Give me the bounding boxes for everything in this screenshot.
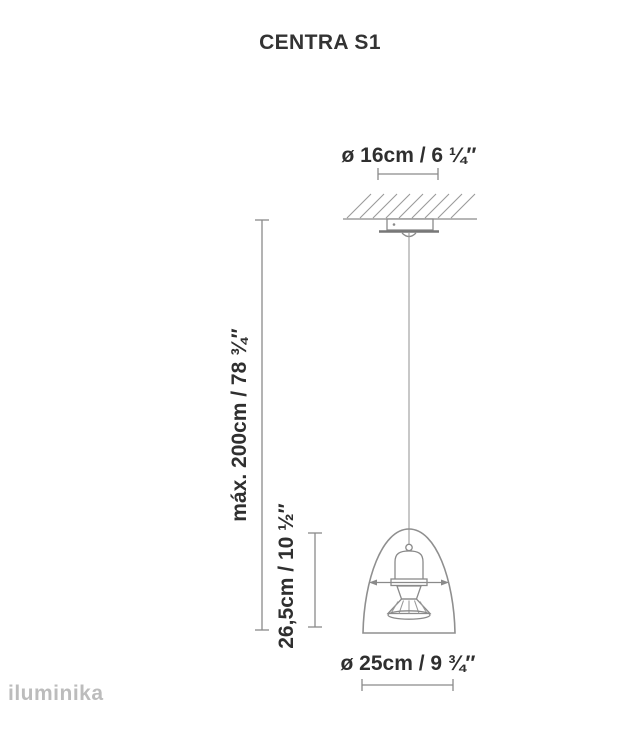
canopy-diameter-label: ø 16cm / 6 ¼″	[342, 144, 477, 167]
bulb-socket	[397, 586, 421, 599]
shade-diameter-dimension-line	[362, 679, 453, 691]
bulb-assembly	[369, 544, 449, 619]
shade-height-dimension-line	[308, 533, 322, 627]
shade-height-label: 26,5cm / 10 ½″	[275, 503, 298, 649]
max-height-label: máx. 200cm / 78 ¾″	[228, 328, 251, 521]
canopy-diameter-dimension-line	[378, 168, 438, 180]
cord-knob	[406, 544, 412, 550]
ceiling-hatch	[347, 194, 475, 218]
shade-diameter-label: ø 25cm / 9 ¾″	[341, 652, 476, 675]
watermark: iluminika	[8, 682, 104, 705]
page-title: CENTRA S1	[259, 31, 381, 54]
dimension-diagram-page: CENTRA S1 ø 16cm / 6 ¼″ máx. 200cm / 78 …	[0, 0, 640, 730]
bulb-glass	[395, 551, 423, 579]
canopy-screw	[393, 223, 396, 226]
lamp-dimension-drawing: CENTRA S1 ø 16cm / 6 ¼″ máx. 200cm / 78 …	[0, 0, 640, 730]
max-height-dimension-line	[255, 220, 269, 630]
